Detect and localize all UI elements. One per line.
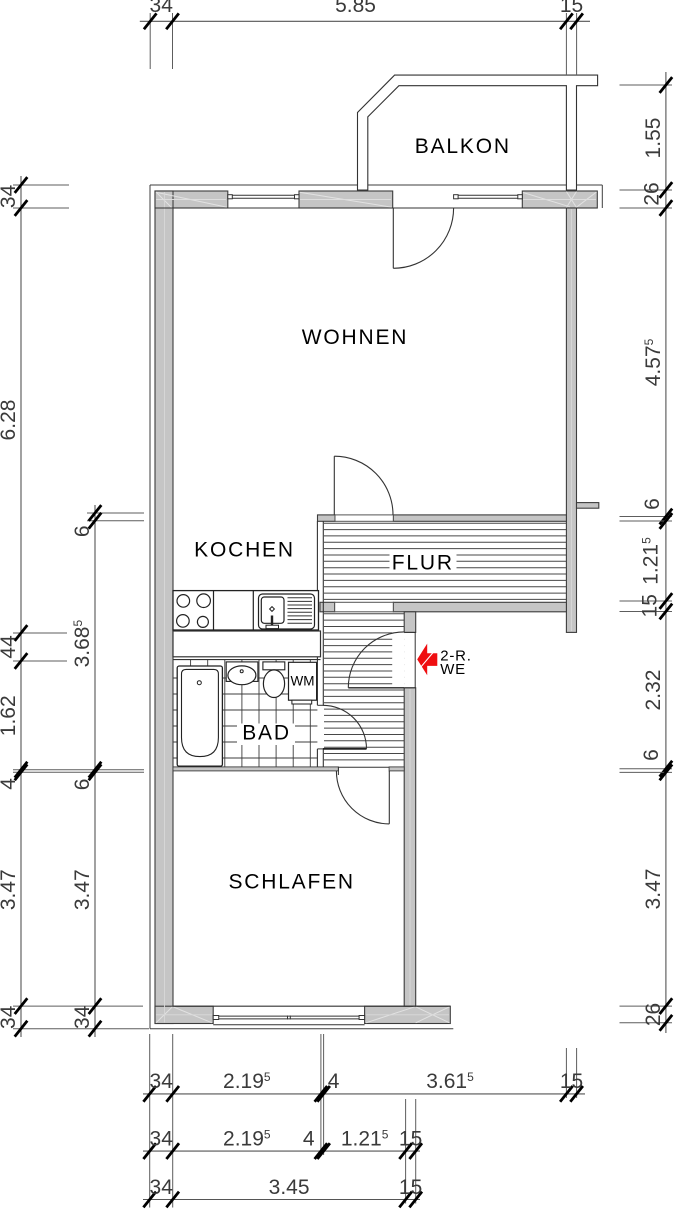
svg-text:BALKON: BALKON [415, 135, 511, 158]
svg-text:15: 15 [560, 1070, 583, 1093]
svg-text:6: 6 [71, 779, 94, 791]
svg-text:34: 34 [71, 1005, 94, 1029]
svg-text:34: 34 [150, 1070, 174, 1093]
svg-text:1.215: 1.215 [341, 1127, 389, 1150]
svg-text:FLUR: FLUR [392, 551, 454, 574]
svg-text:2.195: 2.195 [223, 1127, 271, 1150]
svg-text:5.85: 5.85 [335, 0, 376, 17]
svg-text:2.195: 2.195 [223, 1070, 271, 1093]
svg-text:44: 44 [0, 635, 20, 659]
svg-text:1.55: 1.55 [642, 118, 665, 159]
svg-text:34: 34 [150, 1127, 174, 1150]
svg-text:4.575: 4.575 [642, 338, 665, 386]
svg-text:6: 6 [640, 749, 663, 761]
svg-text:34: 34 [150, 0, 174, 17]
svg-text:6.28: 6.28 [0, 400, 20, 441]
svg-text:15: 15 [399, 1127, 422, 1150]
svg-text:34: 34 [0, 184, 20, 208]
svg-text:15: 15 [639, 594, 662, 617]
svg-text:1.62: 1.62 [0, 695, 20, 736]
svg-text:4: 4 [328, 1070, 340, 1093]
svg-text:3.615: 3.615 [426, 1070, 474, 1093]
svg-text:15: 15 [560, 0, 583, 17]
svg-text:6: 6 [641, 498, 664, 510]
svg-text:2.32: 2.32 [642, 670, 665, 711]
svg-text:4: 4 [0, 778, 20, 790]
svg-text:34: 34 [150, 1176, 174, 1199]
svg-text:KOCHEN: KOCHEN [194, 539, 295, 562]
svg-text:3.685: 3.685 [71, 620, 94, 668]
svg-text:15: 15 [399, 1176, 422, 1199]
svg-text:BAD: BAD [242, 722, 291, 745]
svg-text:34: 34 [0, 1005, 20, 1029]
svg-text:1.215: 1.215 [640, 537, 663, 585]
svg-text:26: 26 [642, 1003, 665, 1026]
svg-text:26: 26 [641, 182, 664, 205]
svg-text:3.47: 3.47 [642, 869, 665, 910]
svg-text:WE: WE [440, 661, 466, 678]
svg-text:WM: WM [291, 673, 315, 688]
svg-text:WOHNEN: WOHNEN [302, 326, 408, 349]
svg-text:SCHLAFEN: SCHLAFEN [228, 871, 354, 894]
svg-text:3.47: 3.47 [0, 869, 20, 910]
svg-text:3.45: 3.45 [269, 1176, 310, 1199]
svg-text:4: 4 [303, 1127, 315, 1150]
svg-text:3.47: 3.47 [71, 869, 94, 910]
svg-text:6: 6 [71, 525, 94, 537]
